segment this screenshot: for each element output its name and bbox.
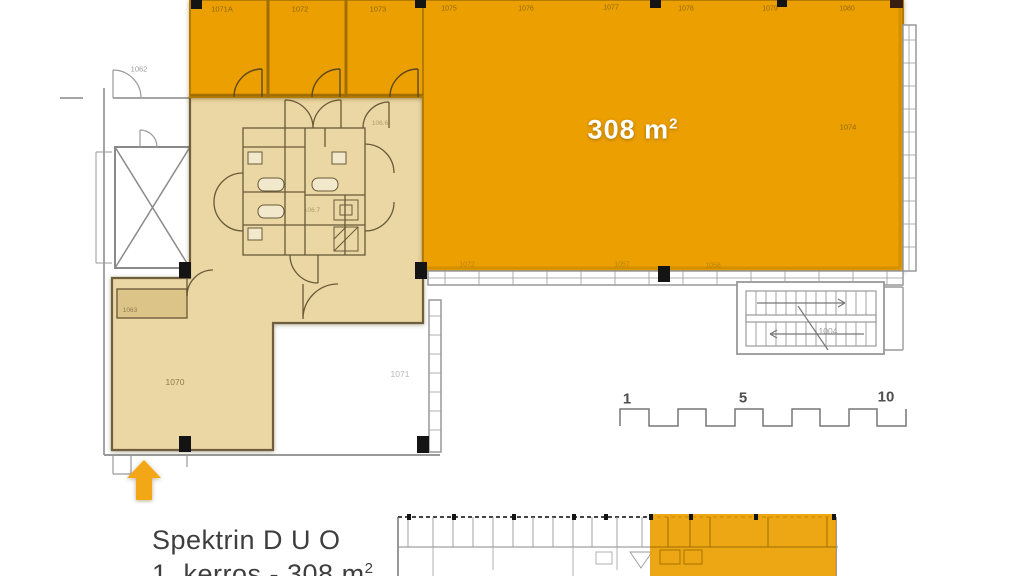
plan-subtitle: 1. kerros - 308 m2	[152, 561, 373, 576]
edge-label-bottom-2: 1057	[614, 262, 630, 269]
staircase-label-1004: 1004	[819, 327, 838, 336]
room-label-top-1: 1071A	[211, 5, 233, 13]
edge-label-1078: 1078	[678, 6, 694, 13]
edge-label-1079: 1079	[762, 6, 778, 13]
floor-plan-page: 308 m2 1074 1071A 1072 1073 1075 1076 10…	[0, 0, 1024, 576]
room-label-1071: 1071	[391, 370, 410, 379]
door-label-1062: 1062	[131, 65, 148, 73]
staircase	[737, 282, 884, 354]
mini-overview-highlight	[650, 514, 836, 576]
area-size-label: 308 m2	[588, 117, 679, 144]
scale-tick-10: 10	[878, 390, 895, 405]
edge-label-1076: 1076	[518, 6, 534, 13]
edge-label-1080: 1080	[839, 6, 855, 13]
edge-label-1075: 1075	[441, 6, 457, 13]
wc-label-right: 106.7	[304, 208, 320, 215]
entrance-arrow-icon	[127, 460, 161, 500]
room-label-top-3: 1073	[370, 5, 387, 13]
area-size-sup: 2	[669, 116, 678, 133]
room-label-1063: 1063	[123, 308, 137, 315]
area-size-value: 308 m	[588, 115, 670, 145]
mini-overview-plan	[398, 514, 838, 576]
floor-plan-svg	[0, 0, 1024, 576]
wc-label-left: 106.6	[372, 121, 388, 128]
room-label-1070: 1070	[166, 378, 185, 387]
room-label-1074: 1074	[840, 123, 857, 131]
edge-label-bottom-1: 1072	[459, 262, 475, 269]
plan-title: Spektrin D U O	[152, 527, 341, 554]
scale-bar	[620, 409, 906, 426]
plan-subtitle-sup: 2	[365, 560, 374, 576]
scale-tick-5: 5	[739, 391, 747, 406]
scale-tick-1: 1	[623, 392, 631, 407]
edge-label-1077: 1077	[603, 5, 619, 12]
shaft	[115, 130, 190, 268]
plan-subtitle-text: 1. kerros - 308 m	[152, 559, 365, 576]
edge-label-bottom-3: 1056	[705, 263, 721, 270]
room-label-top-2: 1072	[292, 5, 309, 13]
